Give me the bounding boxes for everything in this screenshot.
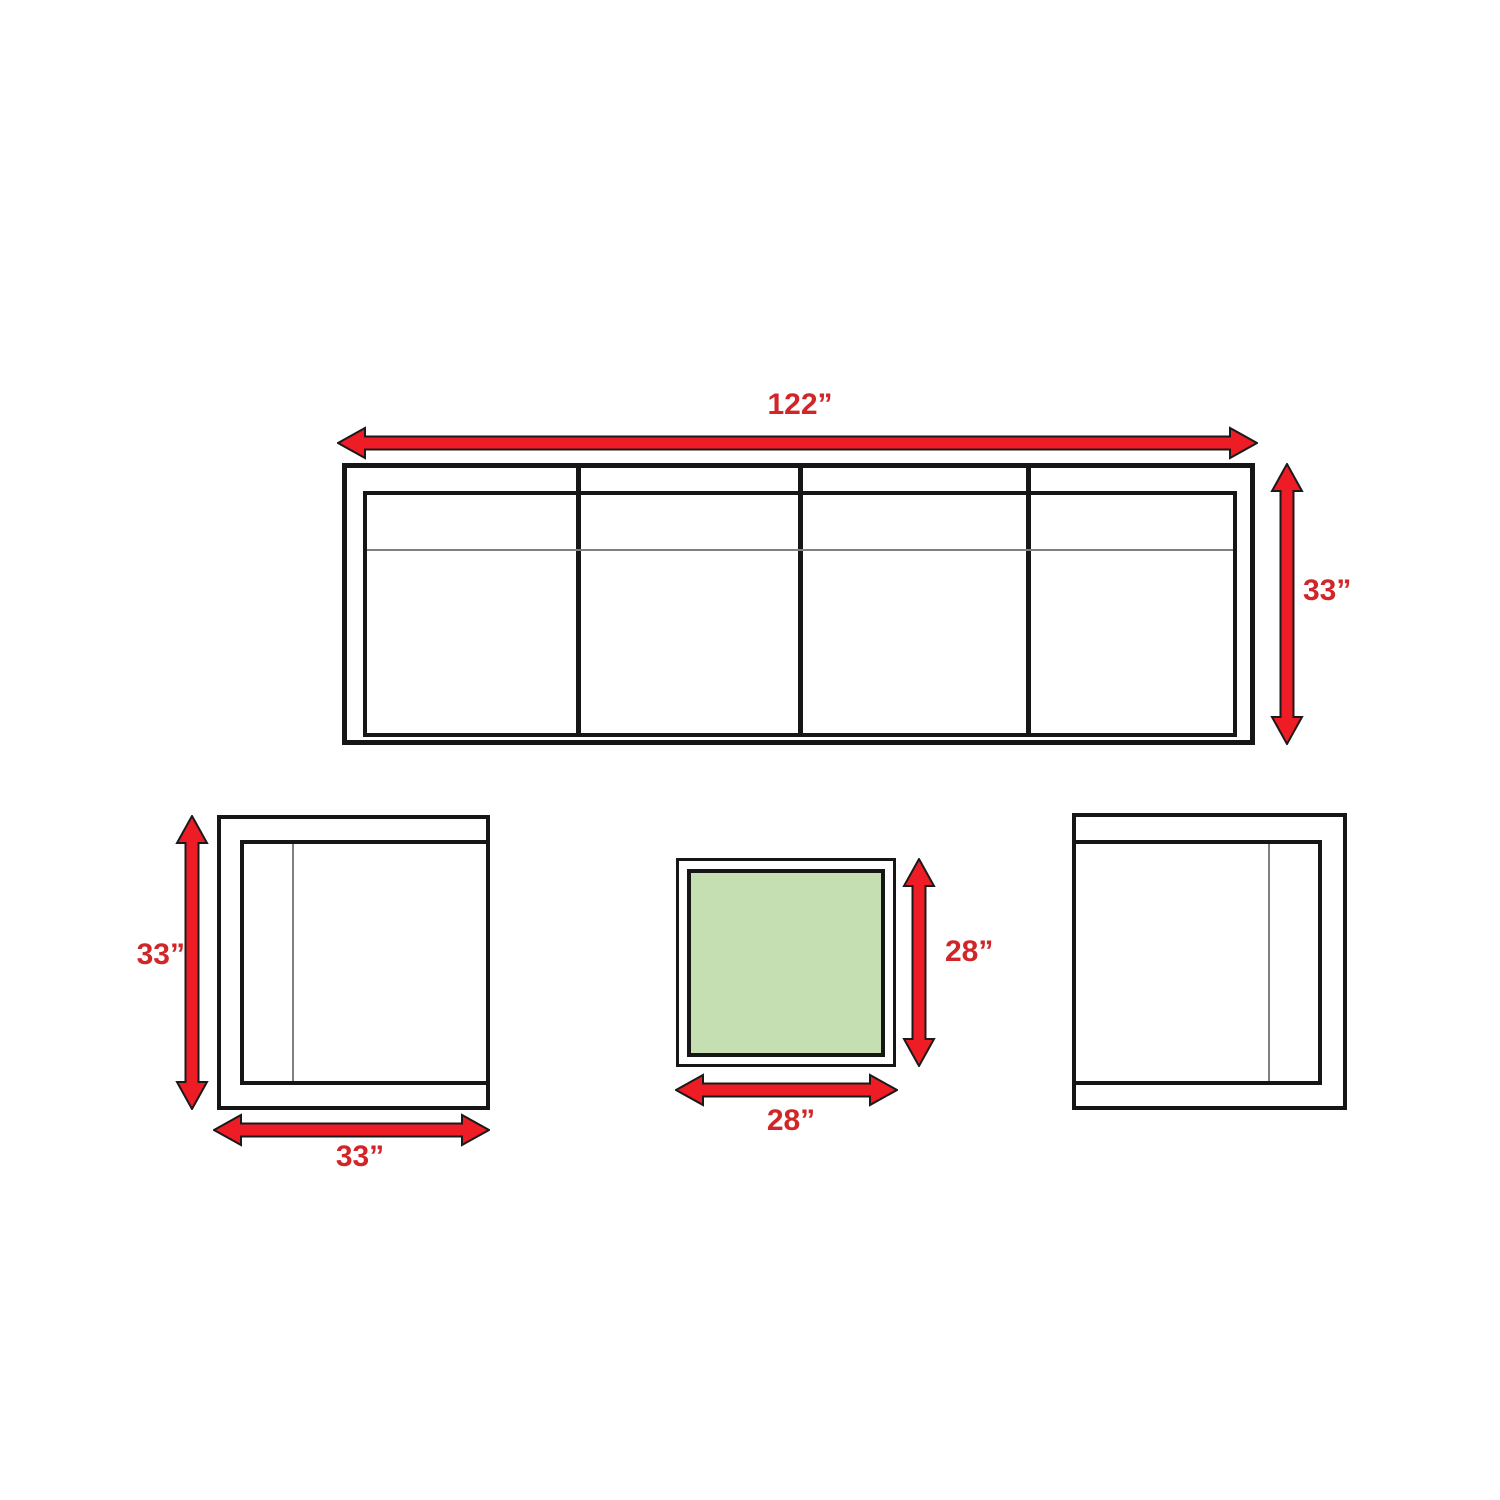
left-chair-height-label: 33” [85, 938, 185, 972]
coffee-table-width-arrow-icon [675, 1072, 898, 1108]
right-chair-seam-line [1268, 844, 1270, 1081]
sofa-back-seam-line [367, 549, 1233, 551]
sofa-cushion-divider-1 [576, 463, 581, 737]
left-chair-width-label: 33” [260, 1140, 460, 1174]
right-chair-seat-outline [1072, 840, 1322, 1085]
furniture-dimensions-diagram: 122” 33” 33” 33” 28” 28” [0, 0, 1500, 1500]
sofa-height-label: 33” [1303, 574, 1403, 608]
sofa-cushion-divider-3 [1026, 463, 1031, 737]
sofa-width-label: 122” [700, 388, 900, 422]
sofa-height-arrow-icon [1269, 463, 1305, 745]
left-chair-seam-line [292, 844, 294, 1081]
sofa-cushion-divider-2 [798, 463, 803, 737]
coffee-table-height-arrow-icon [901, 858, 937, 1067]
sofa-width-arrow-icon [337, 425, 1258, 461]
coffee-table-width-label: 28” [691, 1104, 891, 1138]
coffee-table-top [687, 869, 885, 1057]
left-chair-seat-outline [240, 840, 490, 1085]
coffee-table-height-label: 28” [945, 935, 1045, 969]
